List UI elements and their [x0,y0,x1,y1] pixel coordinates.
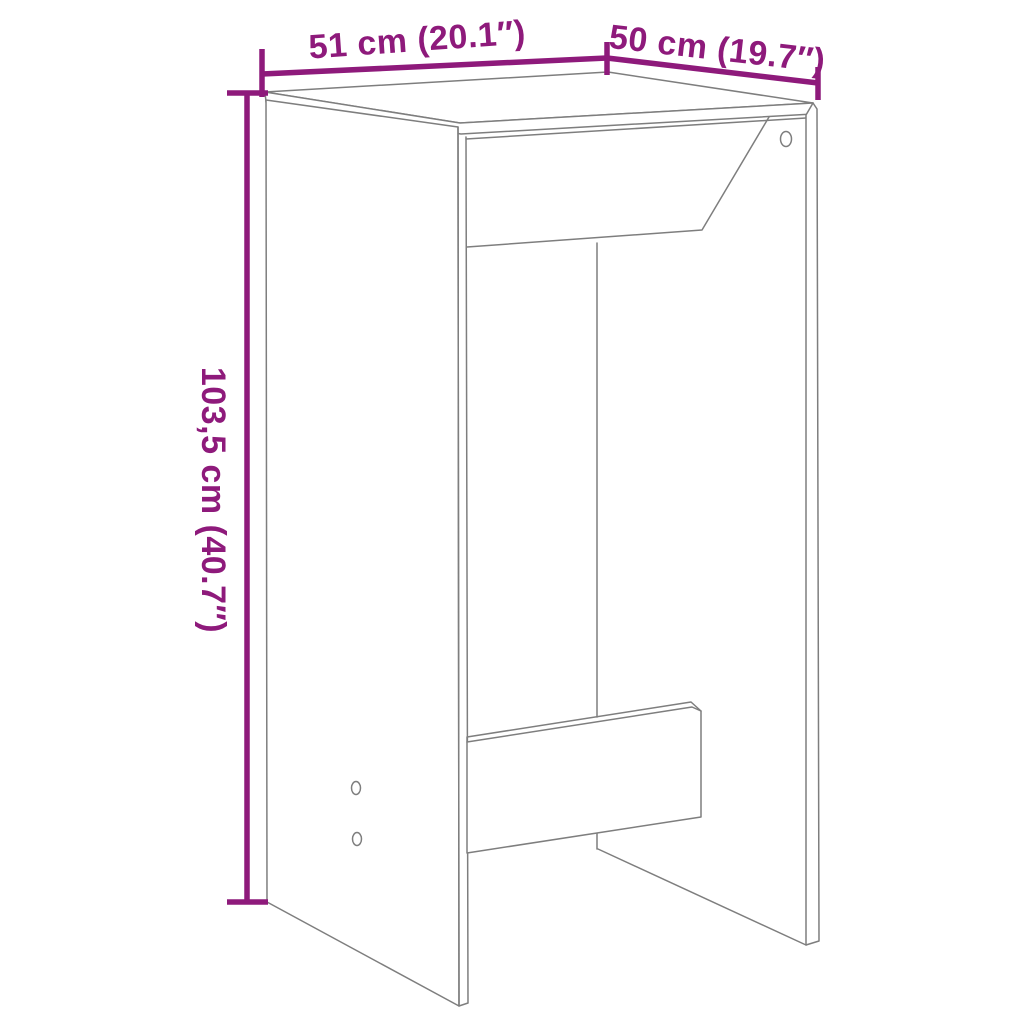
product-dimension-image: 51 cm (20.1″) 50 cm (19.7″) 103,5 cm (40… [0,0,1024,1024]
bar-table-dimension-diagram: 51 cm (20.1″) 50 cm (19.7″) 103,5 cm (40… [0,0,1024,1024]
height-dimension-label: 103,5 cm (40.7″) [194,367,232,633]
screw-hole-right-panel [781,132,792,147]
left-panel-face [266,100,459,1006]
right-panel-edge [806,103,819,945]
center-stretcher [597,243,806,945]
left-panel-front-edge [458,127,468,1006]
bar-table-drawing [265,72,819,1006]
footrest-rail-face [467,707,701,853]
width-dimension-label: 51 cm (20.1″) [307,13,527,66]
